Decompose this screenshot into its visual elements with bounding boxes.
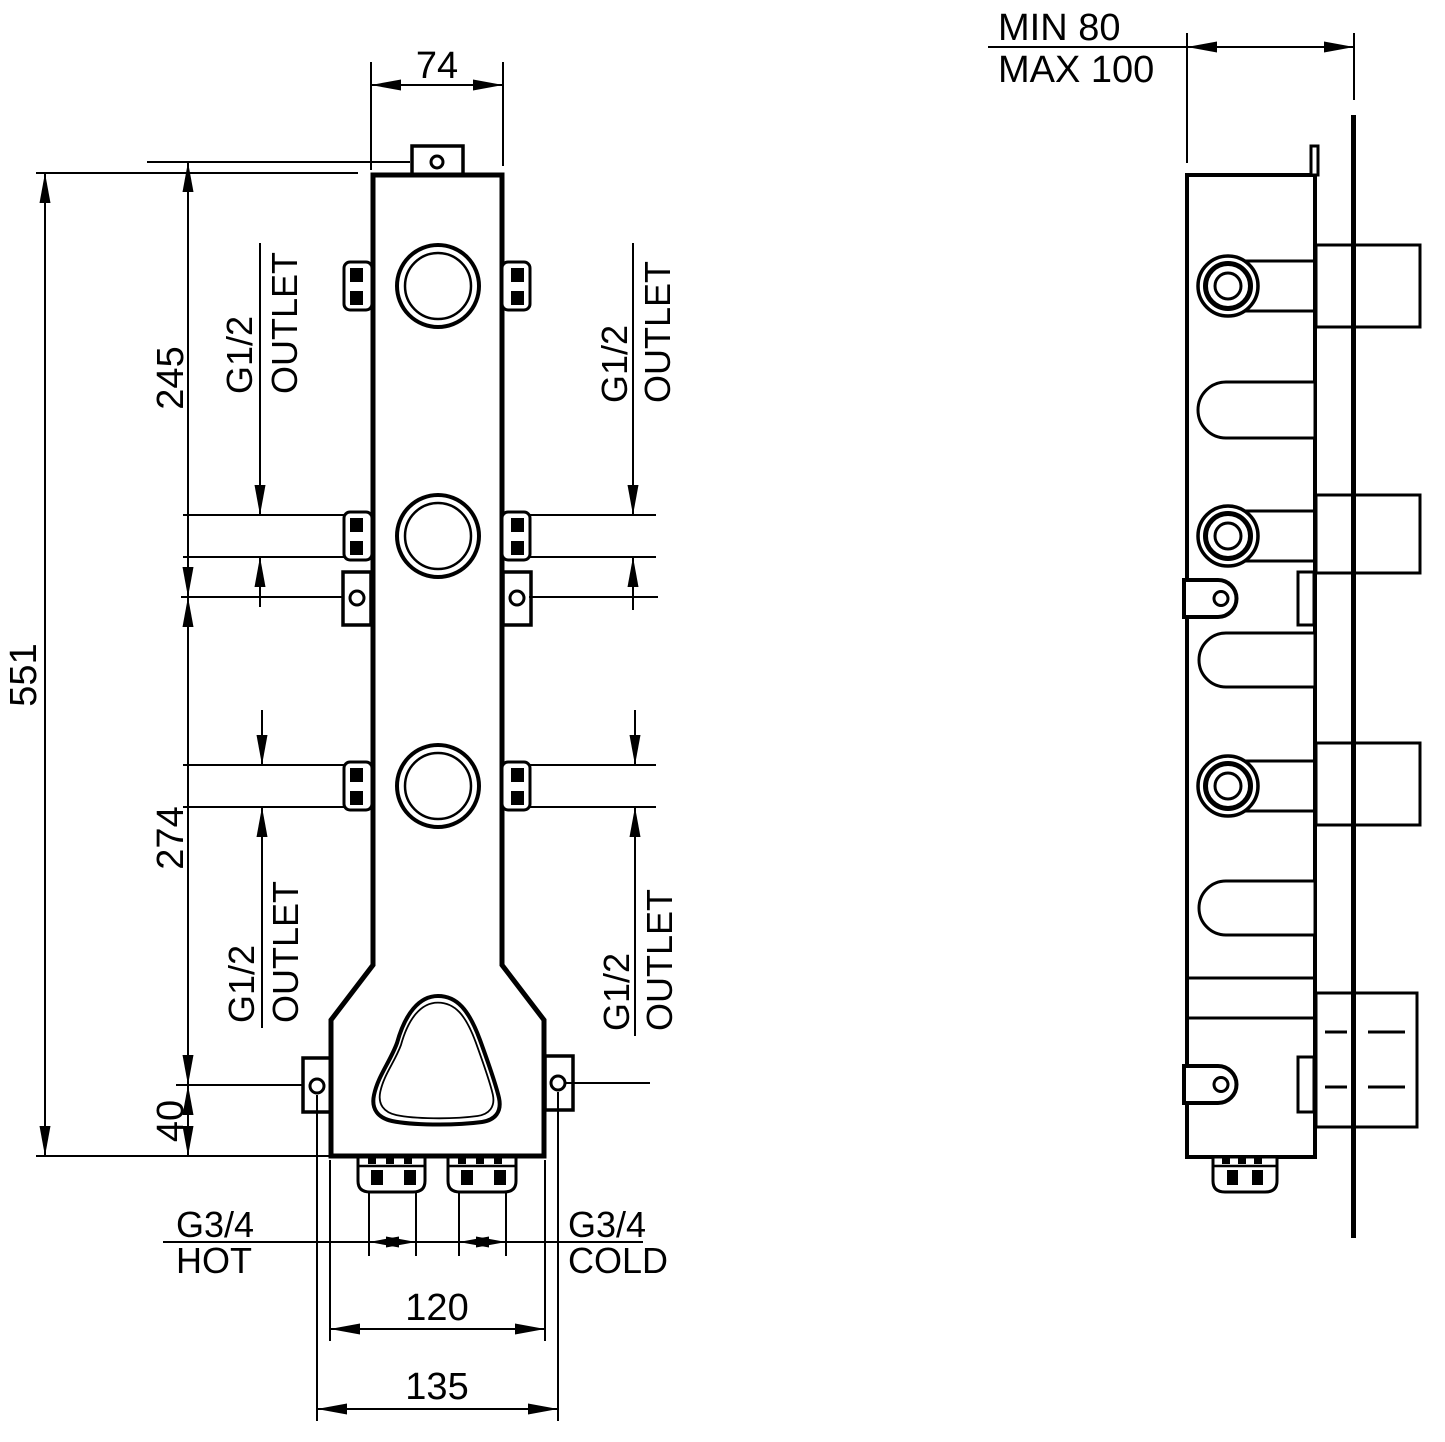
outlet-word-bottom-right: OUTLET bbox=[639, 889, 680, 1031]
depth-max-label: MAX 100 bbox=[998, 49, 1154, 91]
cold-inlet-word: COLD bbox=[568, 1240, 668, 1281]
cold-inlet-thread: G3/4 bbox=[568, 1204, 646, 1245]
inlet-nut-side bbox=[1213, 1157, 1277, 1192]
outlet-thread-top-right: G1/2 bbox=[594, 325, 635, 403]
label-layer: 74 551 245 274 40 G1/2 OUTLET G1/2 OUTLE… bbox=[3, 7, 1154, 1408]
dim-274-label: 274 bbox=[150, 806, 192, 869]
dim-40-label: 40 bbox=[150, 1100, 192, 1142]
outlet-word-top-right: OUTLET bbox=[637, 261, 678, 403]
dim-74-label: 74 bbox=[416, 45, 458, 87]
bracket-hole bbox=[310, 1079, 324, 1093]
side-view bbox=[1184, 115, 1420, 1238]
bracket-hole bbox=[551, 1076, 565, 1090]
outlet-callout-bottom-left bbox=[183, 710, 344, 1028]
hot-inlet-word: HOT bbox=[176, 1240, 252, 1281]
top-tab-side bbox=[1311, 146, 1318, 175]
cold-inlet-nut bbox=[448, 1157, 516, 1192]
dim-120-label: 120 bbox=[405, 1287, 468, 1329]
dim-245-label: 245 bbox=[150, 346, 192, 409]
depth-min-label: MIN 80 bbox=[998, 7, 1120, 49]
outlet-thread-bottom-left: G1/2 bbox=[221, 945, 262, 1023]
outlet-thread-bottom-right: G1/2 bbox=[596, 953, 637, 1031]
dim-551-label: 551 bbox=[3, 643, 45, 706]
bracket-hole bbox=[350, 591, 364, 605]
technical-drawing-page: 74 551 245 274 40 G1/2 OUTLET G1/2 OUTLE… bbox=[0, 0, 1445, 1442]
outlet-thread-top-left: G1/2 bbox=[219, 316, 260, 394]
valve-installation-drawing: 74 551 245 274 40 G1/2 OUTLET G1/2 OUTLE… bbox=[0, 0, 1445, 1442]
hot-inlet-nut bbox=[358, 1157, 425, 1192]
dim-135-label: 135 bbox=[405, 1366, 468, 1408]
outlet-callout-bottom-right bbox=[530, 710, 656, 1036]
hot-inlet-thread: G3/4 bbox=[176, 1204, 254, 1245]
bracket-hole bbox=[510, 591, 524, 605]
trim-blocks-side bbox=[1316, 245, 1420, 1127]
front-view bbox=[303, 146, 573, 1192]
outlet-word-bottom-left: OUTLET bbox=[265, 881, 306, 1023]
outlet-word-top-left: OUTLET bbox=[264, 252, 305, 394]
